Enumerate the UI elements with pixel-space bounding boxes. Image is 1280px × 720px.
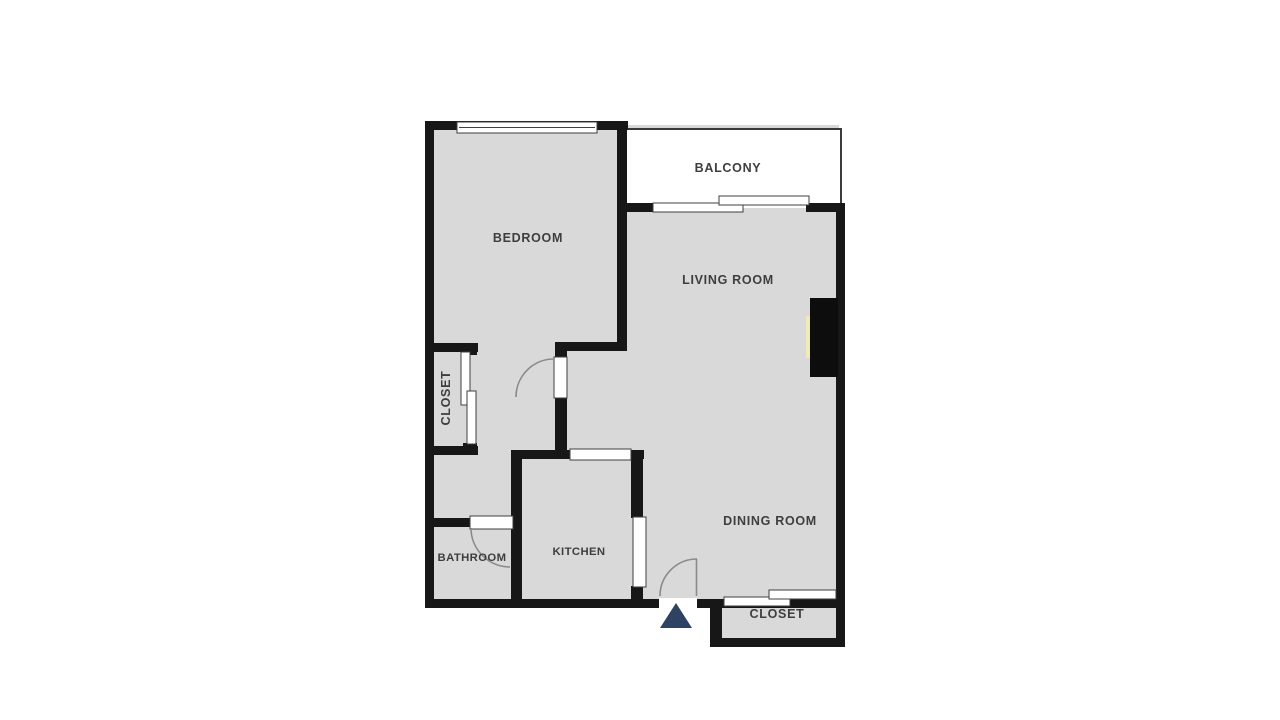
- room-label-bedroom: BEDROOM: [493, 231, 563, 245]
- entry-closet-sliding-door-panel-2: [769, 590, 836, 599]
- wall-hall-door-bottom: [555, 397, 567, 455]
- wall-kitchen-right-upper: [631, 450, 643, 518]
- wall-hall-closet-bottom-stub: [463, 443, 477, 455]
- kitchen-sliding-door: [633, 517, 646, 587]
- wall-entry-closet-bottom: [710, 638, 845, 647]
- floor-plan-canvas: BEDROOM BALCONY LIVING ROOM CLOSET BATHR…: [0, 0, 1280, 720]
- balcony-sliding-door-panel-2: [719, 196, 809, 205]
- wall-kitchen-right-lower: [631, 586, 643, 608]
- room-label-hall-closet: CLOSET: [439, 371, 453, 426]
- wall-kitchen-top-left: [511, 450, 572, 459]
- floor-plan: BEDROOM BALCONY LIVING ROOM CLOSET BATHR…: [0, 0, 1280, 720]
- room-label-kitchen: KITCHEN: [552, 546, 605, 558]
- wall-living-room-top-right: [806, 203, 845, 212]
- hall-closet-sliding-door-panel-2: [467, 391, 476, 444]
- bathroom-door-leaf: [470, 516, 513, 529]
- room-label-bathroom: BATHROOM: [438, 552, 507, 564]
- wall-bathroom-top: [429, 518, 471, 527]
- wall-living-room-top-left: [627, 203, 655, 212]
- room-label-living-room: LIVING ROOM: [682, 273, 774, 287]
- wall-exterior-right: [836, 203, 845, 647]
- wall-hall-door-top-stub: [555, 342, 567, 358]
- wall-exterior-bottom-left: [425, 599, 659, 608]
- fireplace: [810, 298, 838, 377]
- room-label-dining-room: DINING ROOM: [723, 514, 817, 528]
- bedroom-door-leaf: [554, 357, 567, 398]
- wall-exterior-left: [425, 121, 434, 608]
- kitchen-pass-through: [570, 449, 631, 460]
- room-label-balcony: BALCONY: [695, 161, 762, 175]
- wall-bedroom-right: [617, 121, 627, 351]
- room-label-entry-closet: CLOSET: [750, 607, 805, 621]
